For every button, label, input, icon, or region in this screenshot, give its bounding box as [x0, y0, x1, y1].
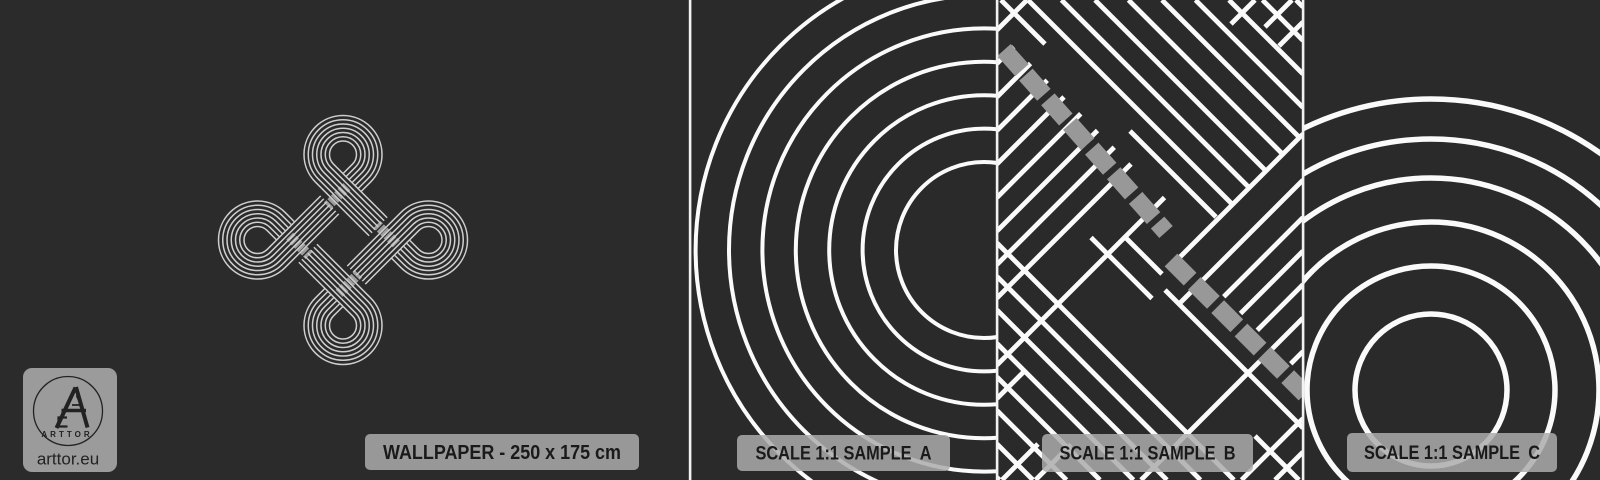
svg-text:ARTTOR: ARTTOR: [41, 430, 92, 439]
svg-text:SCALE 1:1 SAMPLE B: SCALE 1:1 SAMPLE B: [1060, 444, 1236, 465]
svg-text:arttor.eu: arttor.eu: [37, 450, 99, 469]
svg-text:SCALE 1:1 SAMPLE C: SCALE 1:1 SAMPLE C: [1364, 443, 1540, 464]
svg-text:WALLPAPER - 250 x 175 cm: WALLPAPER - 250 x 175 cm: [383, 441, 621, 464]
svg-text:SCALE 1:1 SAMPLE A: SCALE 1:1 SAMPLE A: [756, 444, 932, 465]
